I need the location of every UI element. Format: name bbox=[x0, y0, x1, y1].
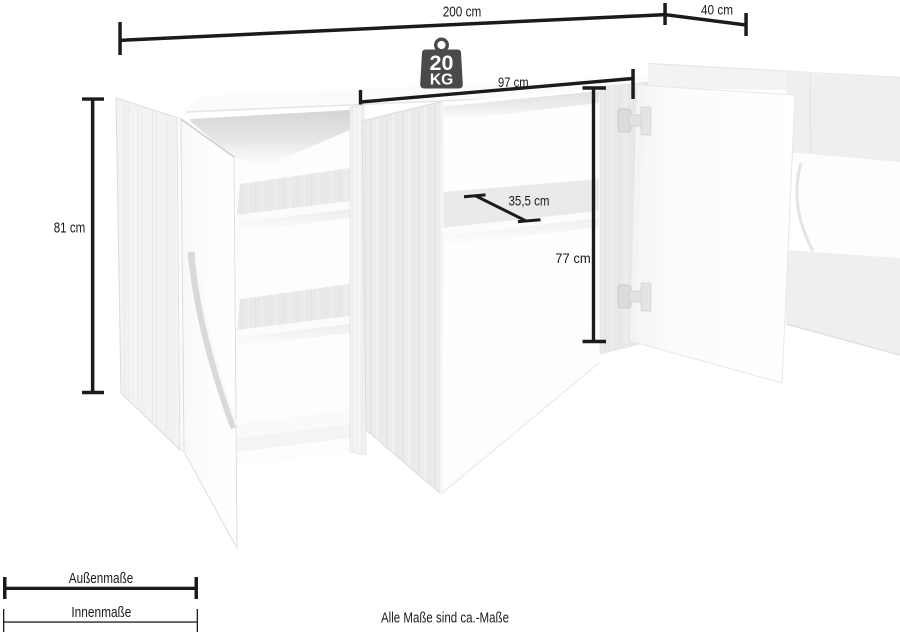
svg-text:81 cm: 81 cm bbox=[54, 220, 86, 237]
svg-text:77 cm: 77 cm bbox=[555, 250, 591, 266]
svg-text:40 cm: 40 cm bbox=[701, 2, 733, 18]
svg-text:35,5 cm: 35,5 cm bbox=[509, 194, 550, 209]
svg-text:Alle Maße sind ca.-Maße: Alle Maße sind ca.-Maße bbox=[381, 611, 509, 627]
svg-text:Innenmaße: Innenmaße bbox=[71, 605, 131, 621]
svg-text:200 cm: 200 cm bbox=[443, 5, 482, 21]
svg-text:KG: KG bbox=[430, 72, 453, 89]
svg-text:Außenmaße: Außenmaße bbox=[69, 571, 134, 587]
svg-text:97 cm: 97 cm bbox=[498, 74, 529, 90]
